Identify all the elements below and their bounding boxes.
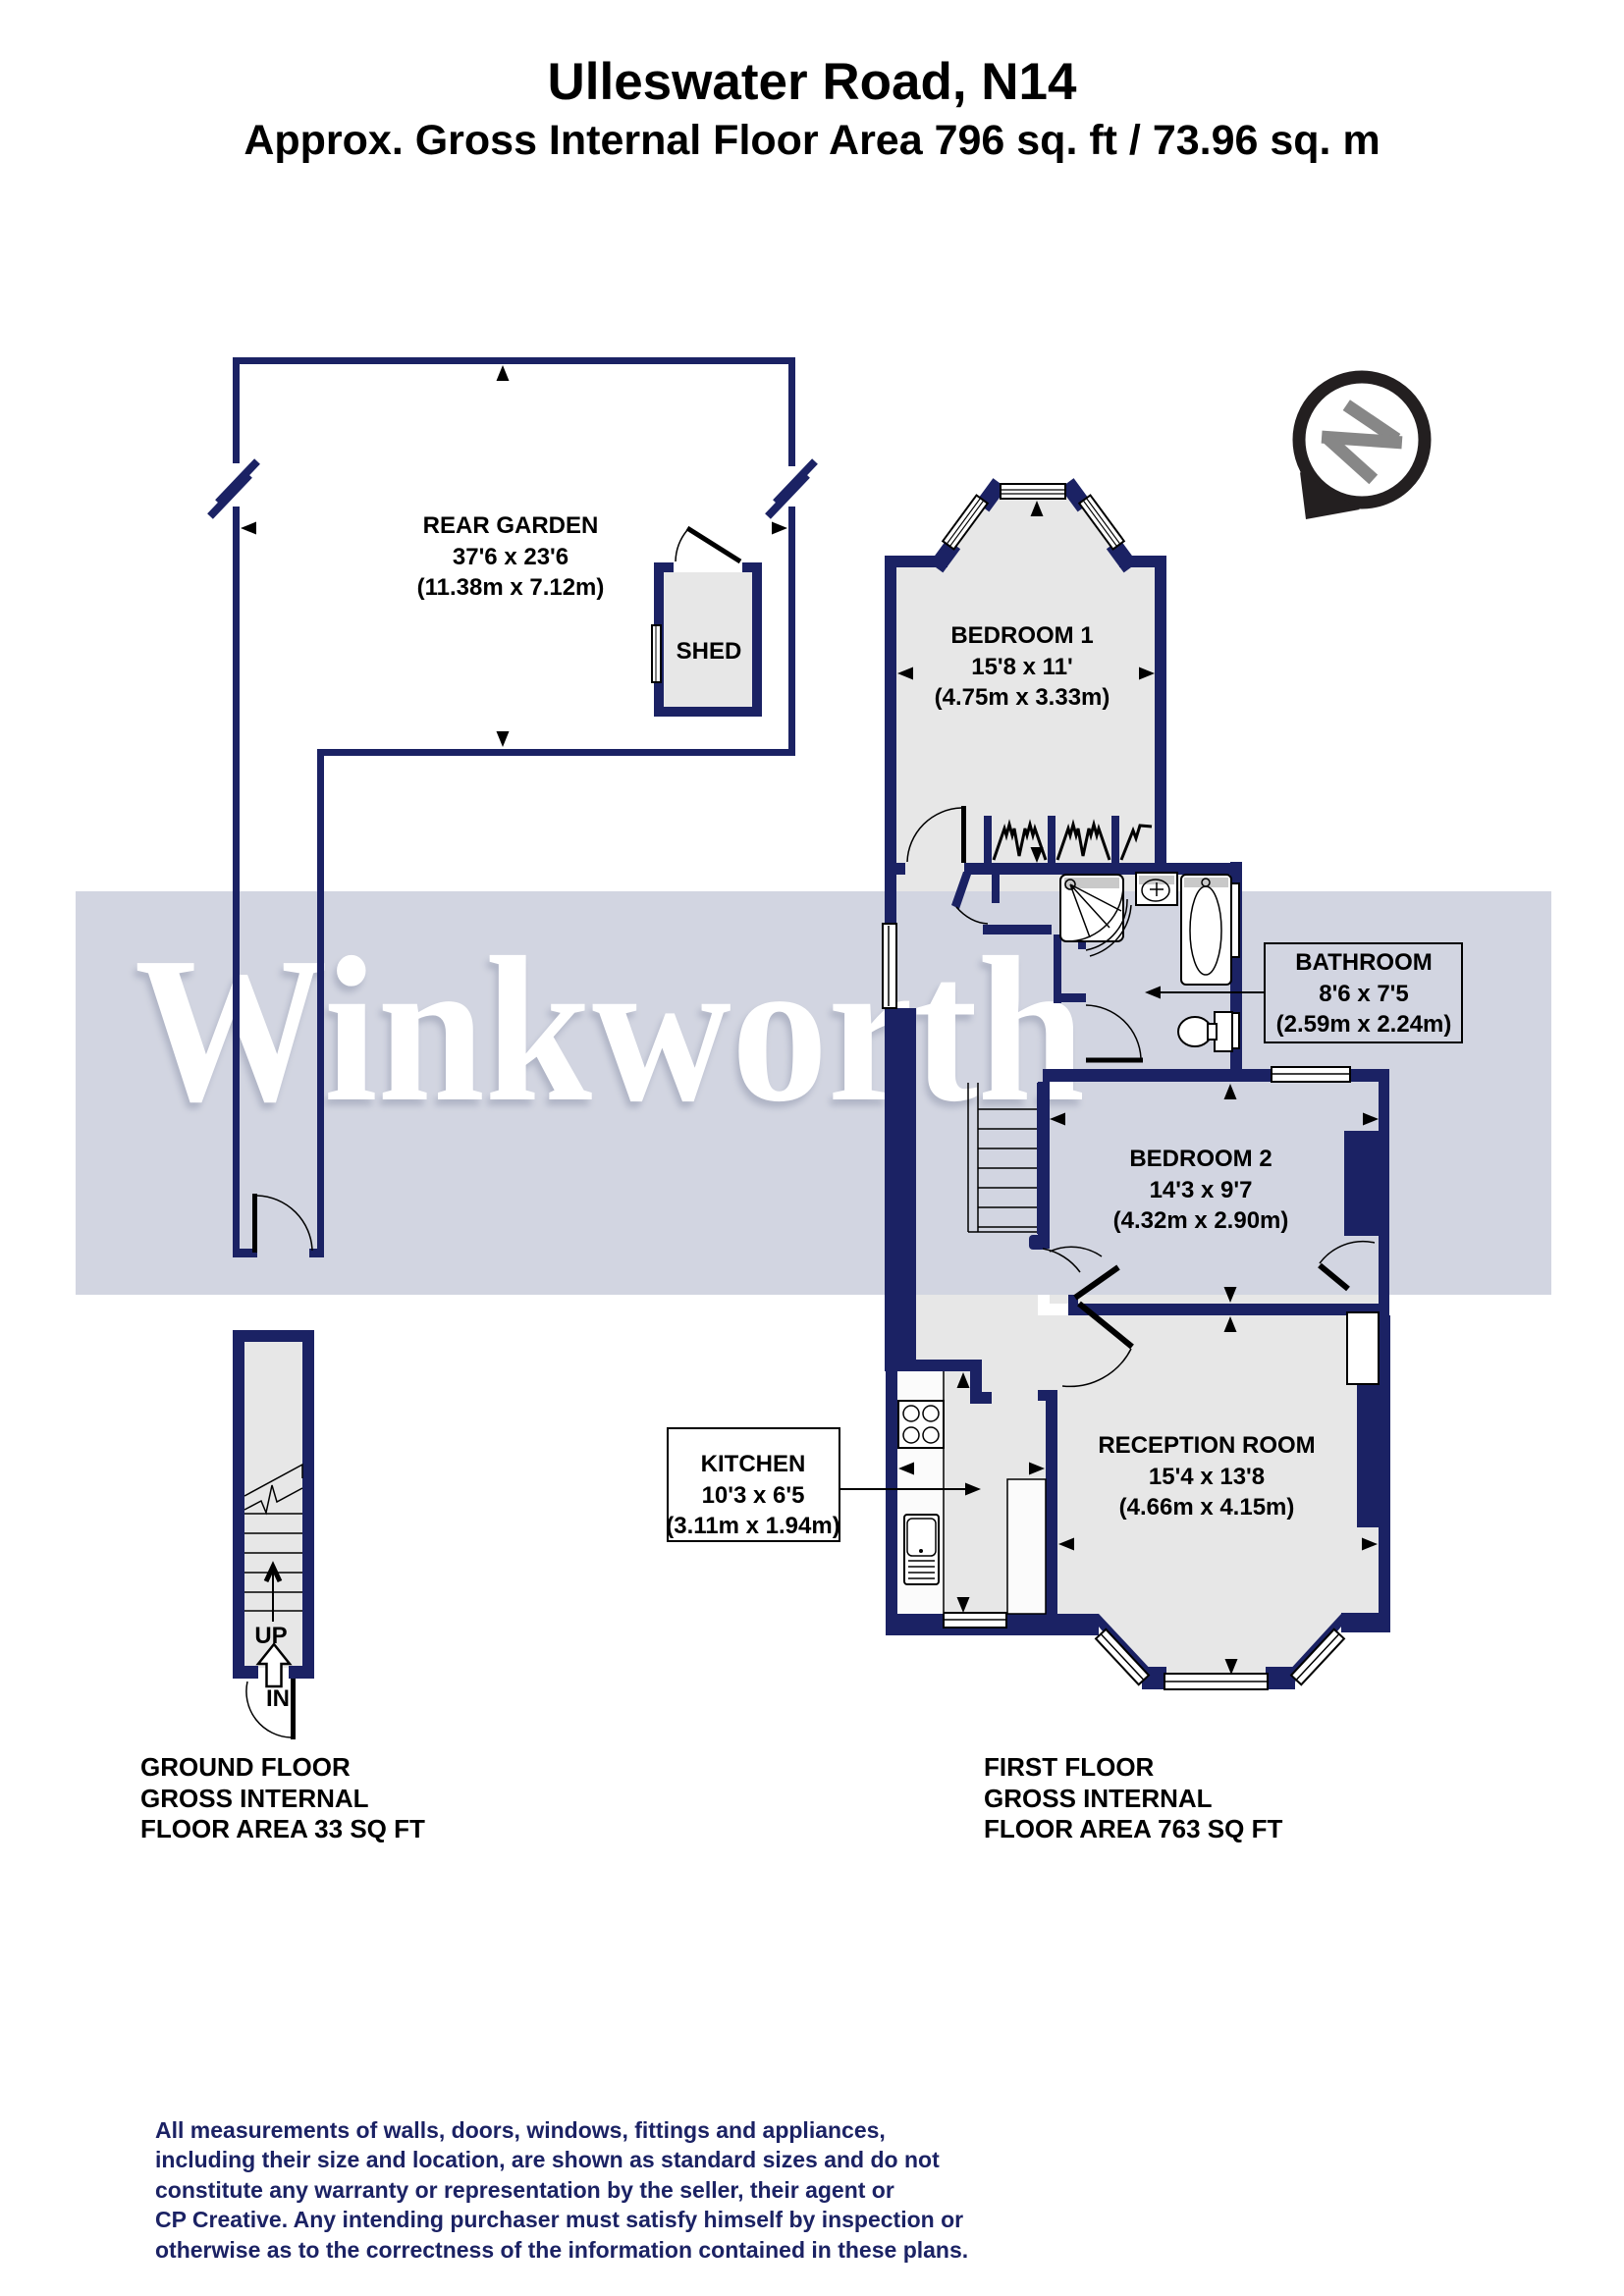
svg-text:constitute any warranty or rep: constitute any warranty or representatio… — [155, 2177, 894, 2203]
svg-text:IN: IN — [266, 1685, 290, 1712]
svg-text:15'4 x 13'8: 15'4 x 13'8 — [1149, 1464, 1265, 1490]
svg-text:(11.38m x 7.12m): (11.38m x 7.12m) — [417, 574, 605, 601]
svg-text:CP Creative. Any intending pur: CP Creative. Any intending purchaser mus… — [155, 2207, 963, 2232]
svg-text:BATHROOM: BATHROOM — [1295, 949, 1433, 976]
svg-text:GROSS INTERNAL: GROSS INTERNAL — [984, 1784, 1213, 1813]
svg-text:KITCHEN: KITCHEN — [701, 1451, 806, 1477]
svg-text:RECEPTION ROOM: RECEPTION ROOM — [1098, 1432, 1315, 1459]
svg-text:UP: UP — [254, 1623, 287, 1649]
svg-text:Ulleswater Road, N14: Ulleswater Road, N14 — [547, 53, 1077, 111]
svg-text:otherwise as to the correctnes: otherwise as to the correctness of the i… — [155, 2237, 968, 2263]
svg-text:(4.75m x 3.33m): (4.75m x 3.33m) — [935, 684, 1110, 711]
svg-text:(4.32m x 2.90m): (4.32m x 2.90m) — [1113, 1207, 1289, 1234]
svg-text:All measurements of walls, doo: All measurements of walls, doors, window… — [155, 2117, 886, 2143]
svg-text:FIRST FLOOR: FIRST FLOOR — [984, 1752, 1155, 1782]
svg-text:BEDROOM 2: BEDROOM 2 — [1129, 1146, 1272, 1172]
svg-text:FLOOR AREA 33 SQ FT: FLOOR AREA 33 SQ FT — [140, 1814, 425, 1843]
svg-text:(2.59m x 2.24m): (2.59m x 2.24m) — [1276, 1011, 1452, 1038]
svg-text:14'3 x 9'7: 14'3 x 9'7 — [1150, 1177, 1253, 1203]
svg-text:BEDROOM 1: BEDROOM 1 — [950, 622, 1093, 649]
svg-text:Approx. Gross Internal Floor A: Approx. Gross Internal Floor Area 796 sq… — [244, 117, 1380, 164]
svg-text:FLOOR AREA 763 SQ FT: FLOOR AREA 763 SQ FT — [984, 1814, 1282, 1843]
svg-text:GROUND FLOOR: GROUND FLOOR — [140, 1752, 351, 1782]
svg-text:10'3 x 6'5: 10'3 x 6'5 — [702, 1482, 805, 1509]
svg-text:8'6 x 7'5: 8'6 x 7'5 — [1319, 981, 1409, 1007]
svg-text:including their size and locat: including their size and location, are s… — [155, 2147, 940, 2172]
svg-text:REAR GARDEN: REAR GARDEN — [423, 512, 599, 539]
svg-text:37'6 x 23'6: 37'6 x 23'6 — [453, 544, 568, 570]
svg-text:SHED: SHED — [677, 638, 742, 665]
svg-text:15'8 x 11': 15'8 x 11' — [971, 654, 1073, 680]
svg-text:(4.66m x 4.15m): (4.66m x 4.15m) — [1119, 1494, 1295, 1521]
svg-text:GROSS INTERNAL: GROSS INTERNAL — [140, 1784, 369, 1813]
svg-text:(3.11m x 1.94m): (3.11m x 1.94m) — [666, 1513, 839, 1539]
svg-text:Winkworth: Winkworth — [135, 914, 1085, 1145]
